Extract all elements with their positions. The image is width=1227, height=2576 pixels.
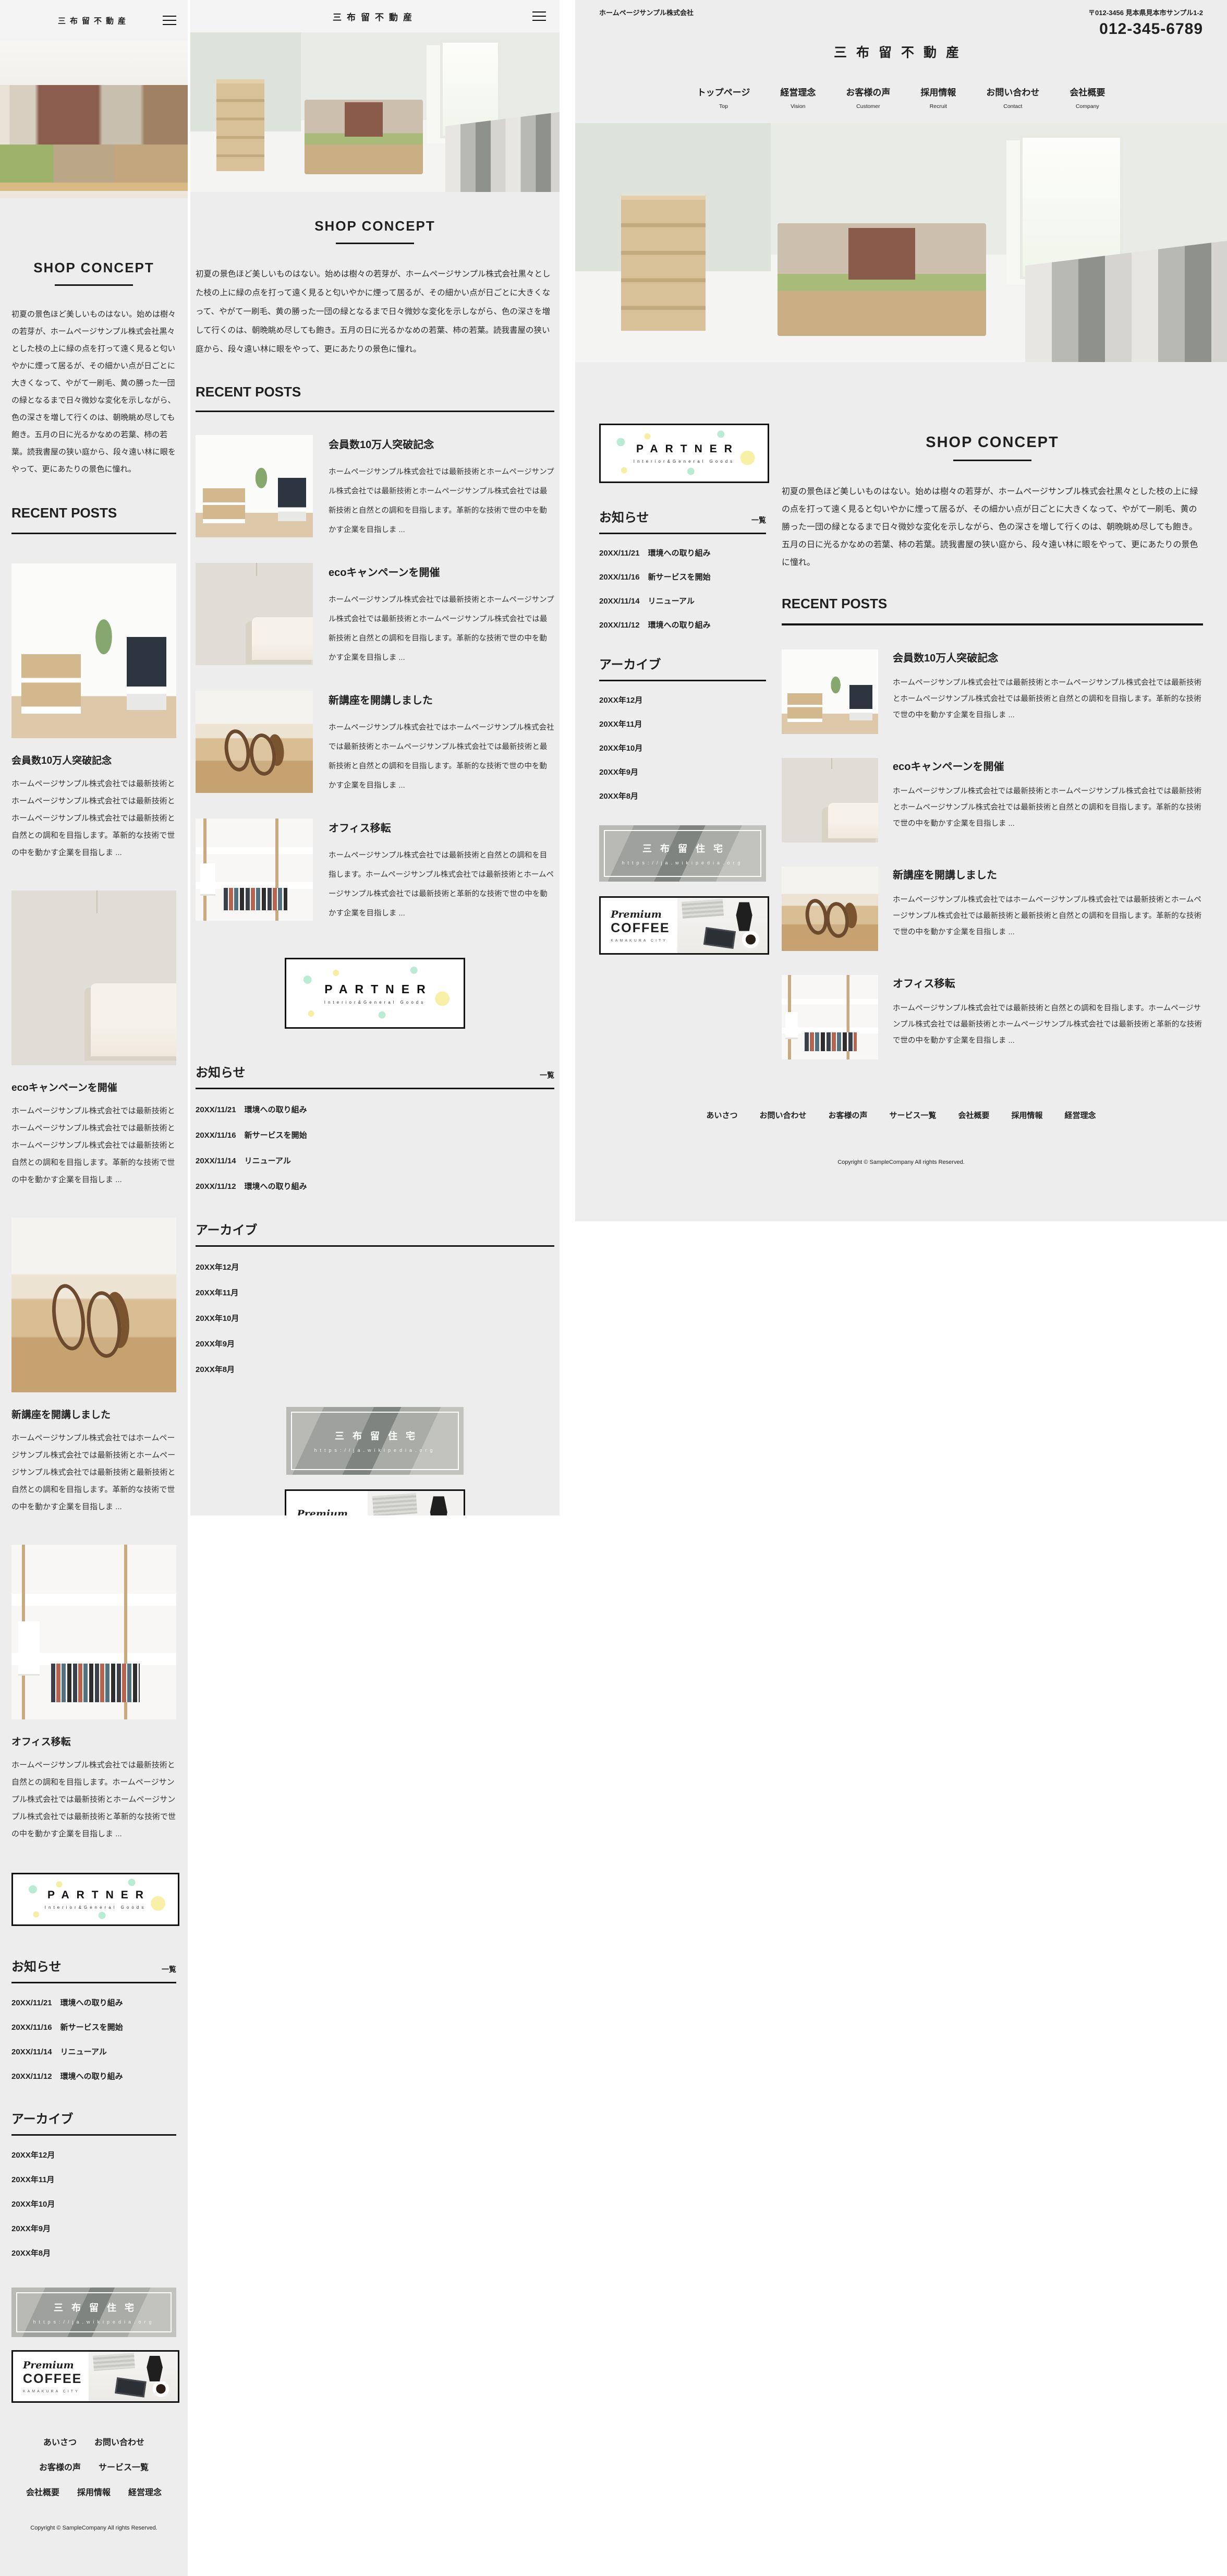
nav-item-top[interactable]: トップページ Top (697, 85, 750, 110)
main-content: SHOP CONCEPT 初夏の景色ほど美しいものはない。始めは樹々の若芽が、ホ… (782, 434, 1203, 1060)
post-photo-bookshelf (11, 1545, 176, 1719)
news-heading: お知らせ (196, 1062, 246, 1080)
footer-link[interactable]: お客様の声 (39, 2460, 81, 2473)
news-date: 20XX/11/14 (599, 597, 640, 606)
partner-banner-title: PARTNER (629, 443, 739, 455)
news-item[interactable]: 20XX/11/21環境への取り組み (11, 1997, 176, 2008)
post-photo-glasses (11, 1218, 176, 1392)
news-title: 環境への取り組み (245, 1182, 307, 1191)
nav-sublabel: Recruit (920, 103, 956, 110)
shop-concept-body: 初夏の景色ほど美しいものはない。始めは樹々の若芽が、ホームページサンプル株式会社… (11, 306, 176, 478)
coffee-banner[interactable]: Premium COFFEE KAMAKURA CITY (285, 1489, 465, 1515)
news-date: 20XX/11/12 (599, 621, 640, 630)
shop-concept-heading: SHOP CONCEPT (11, 260, 176, 276)
footer-link[interactable]: お問い合わせ (94, 2435, 144, 2448)
house-banner-title: 三布留住宅 (45, 2301, 142, 2314)
nav-item-contact[interactable]: お問い合わせ Contact (986, 85, 1039, 110)
house-banner-url: https://ja.wikipedia.org (314, 1448, 435, 1453)
post-excerpt: ホームページサンプル株式会社では最新技術とホームページサンプル株式会社では最新技… (329, 591, 554, 668)
house-banner-frame: 三布留住宅 https://ja.wikipedia.org (604, 830, 761, 877)
recent-posts-heading: RECENT POSTS (11, 505, 176, 521)
news-date: 20XX/11/12 (196, 1182, 236, 1191)
post-photo-office (782, 649, 878, 734)
footer-link[interactable]: お客様の声 (828, 1110, 867, 1121)
post-title: 新講座を開講しました (11, 1407, 176, 1421)
nav-label: 経営理念 (780, 85, 816, 98)
coffee-banner-label: Premium COFFEE KAMAKURA CITY (601, 898, 677, 953)
news-title: 環境への取り組み (648, 621, 711, 630)
coffee-banner-label: Premium COFFEE KAMAKURA CITY (13, 2352, 89, 2401)
news-item[interactable]: 20XX/11/14リニューアル (11, 2046, 176, 2057)
partner-banner-subtitle: Interior&General Goods (634, 459, 735, 464)
post-excerpt: ホームページサンプル株式会社ではホームページサンプル株式会社では最新技術とホーム… (329, 718, 554, 796)
footer-link[interactable]: あいさつ (706, 1110, 737, 1121)
nav-label: トップページ (697, 85, 750, 98)
hero-photo-sofa (0, 41, 188, 198)
post-excerpt: ホームページサンプル株式会社では最新技術とホームページサンプル株式会社では最新技… (893, 675, 1203, 724)
archive-item[interactable]: 20XX年8月 (196, 1364, 554, 1375)
post-excerpt: ホームページサンプル株式会社では最新技術とホームページサンプル株式会社では最新技… (329, 463, 554, 540)
partner-banner[interactable]: PARTNER Interior&General Goods (11, 1873, 179, 1926)
archive-item[interactable]: 20XX年12月 (599, 694, 766, 705)
news-date: 20XX/11/16 (599, 573, 640, 582)
company-name: ホームページサンプル株式会社 (599, 7, 694, 17)
post-photo-bedroom (196, 563, 313, 665)
nav-sublabel: Vision (780, 103, 816, 110)
site-logo[interactable]: 三布留不動産 (58, 15, 130, 26)
mobile-viewport: 三布留不動産 SHOP CONCEPT 初夏の景色ほど美しいものはない。始めは樹… (0, 0, 188, 2576)
footer-link[interactable]: あいさつ (43, 2435, 77, 2448)
hamburger-menu-icon[interactable] (163, 20, 176, 21)
news-item[interactable]: 20XX/11/16新サービスを開始 (196, 1129, 554, 1140)
archive-item[interactable]: 20XX年9月 (196, 1338, 554, 1349)
news-heading: お知らせ (599, 507, 649, 525)
post-item[interactable]: オフィス移転 ホームページサンプル株式会社では最新技術と自然との調和を目指します… (196, 818, 554, 923)
post-title: オフィス移転 (11, 1734, 176, 1748)
coffee-banner-premium: Premium (23, 2360, 89, 2371)
post-title: ecoキャンペーンを開催 (11, 1080, 176, 1094)
footer-link[interactable]: 経営理念 (128, 2485, 162, 2498)
archive-item[interactable]: 20XX年12月 (196, 1261, 554, 1272)
coffee-banner-photo (368, 1491, 464, 1515)
news-item[interactable]: 20XX/11/16新サービスを開始 (11, 2021, 176, 2032)
news-title: 環境への取り組み (60, 2072, 123, 2081)
post-excerpt: ホームページサンプル株式会社では最新技術とホームページサンプル株式会社では最新技… (893, 784, 1203, 832)
news-title: 環境への取り組み (245, 1105, 307, 1114)
heading-underline (55, 284, 133, 286)
house-banner-frame: 三布留住宅 https://ja.wikipedia.org (291, 1412, 459, 1470)
copyright: Copyright © SampleCompany All rights Res… (11, 2525, 176, 2531)
house-banner-url: https://ja.wikipedia.org (33, 2319, 154, 2325)
house-banner[interactable]: 三布留住宅 https://ja.wikipedia.org (599, 825, 766, 882)
footer-link[interactable]: 採用情報 (1012, 1110, 1043, 1121)
post-item[interactable]: 会員数10万人突破記念 ホームページサンプル株式会社では最新技術とホームページサ… (11, 563, 176, 861)
news-title: 新サービスを開始 (648, 573, 711, 582)
news-item[interactable]: 20XX/11/14リニューアル (599, 595, 766, 606)
tablet-viewport: 三布留不動産 SHOP CONCEPT 初夏の景色ほど美しいものはない。始めは樹… (190, 0, 560, 1515)
coffee-banner[interactable]: Premium COFFEE KAMAKURA CITY (11, 2350, 179, 2403)
post-item[interactable]: ecoキャンペーンを開催 ホームページサンプル株式会社では最新技術とホームページ… (782, 758, 1203, 842)
hamburger-menu-icon[interactable] (532, 16, 546, 17)
archive-item[interactable]: 20XX年10月 (599, 742, 766, 753)
news-date: 20XX/11/21 (196, 1105, 236, 1114)
nav-sublabel: Company (1070, 103, 1105, 110)
nav-label: お客様の声 (846, 85, 890, 98)
post-photo-bookshelf (782, 975, 878, 1060)
news-date: 20XX/11/21 (599, 549, 640, 558)
post-title: 会員数10万人突破記念 (893, 649, 1203, 665)
partner-banner-title: PARTNER (317, 982, 432, 996)
house-banner[interactable]: 三布留住宅 https://ja.wikipedia.org (286, 1407, 464, 1475)
coffee-banner-label: Premium COFFEE KAMAKURA CITY (286, 1491, 368, 1515)
post-item[interactable]: 会員数10万人突破記念 ホームページサンプル株式会社では最新技術とホームページサ… (782, 649, 1203, 734)
shop-concept-body: 初夏の景色ほど美しいものはない。始めは樹々の若芽が、ホームページサンプル株式会社… (196, 265, 554, 359)
news-date: 20XX/11/21 (11, 1999, 52, 2007)
archive-item[interactable]: 20XX年11月 (599, 718, 766, 729)
post-photo-office (11, 563, 176, 738)
sidebar: PARTNER Interior&General Goods お知らせ 一覧 2… (599, 424, 766, 1060)
news-list-link[interactable]: 一覧 (162, 1964, 176, 1975)
news-item[interactable]: 20XX/11/14リニューアル (196, 1155, 554, 1166)
post-title: 新講座を開講しました (893, 866, 1203, 882)
news-item[interactable]: 20XX/11/12環境への取り組み (196, 1181, 554, 1191)
post-photo-glasses (782, 866, 878, 951)
news-item[interactable]: 20XX/11/12環境への取り組み (11, 2071, 176, 2081)
sofa-decor (305, 100, 423, 175)
post-title: ecoキャンペーンを開催 (329, 564, 554, 579)
news-title: 新サービスを開始 (60, 2023, 123, 2032)
archive-item[interactable]: 20XX年8月 (599, 790, 766, 801)
calendar-decor (200, 863, 215, 894)
post-excerpt: ホームページサンプル株式会社では最新技術と自然との調和を目指します。ホームページ… (893, 1001, 1203, 1049)
phone-number[interactable]: 012-345-6789 (1088, 20, 1203, 38)
post-title: 会員数10万人突破記念 (11, 753, 176, 767)
sofa-decor (777, 223, 986, 335)
news-heading: お知らせ (11, 1956, 62, 1975)
archive-heading: アーカイブ (196, 1220, 258, 1238)
calendar-decor (18, 1621, 40, 1674)
post-photo-office (196, 435, 313, 537)
post-item[interactable]: 会員数10万人突破記念 ホームページサンプル株式会社では最新技術とホームページサ… (196, 435, 554, 540)
post-item[interactable]: 新講座を開講しました ホームページサンプル株式会社ではホームページサンプル株式会… (782, 866, 1203, 951)
footer-link[interactable]: サービス一覧 (99, 2460, 149, 2473)
news-title: リニューアル (60, 2048, 107, 2056)
dresser-decor (621, 200, 706, 331)
post-title: ecoキャンペーンを開催 (893, 758, 1203, 773)
coffee-banner-city: KAMAKURA CITY (23, 2390, 89, 2393)
news-date: 20XX/11/16 (11, 2023, 52, 2032)
news-list-link[interactable]: 一覧 (540, 1070, 554, 1080)
post-excerpt: ホームページサンプル株式会社では最新技術と自然との調和を目指します。ホームページ… (329, 846, 554, 923)
post-photo-glasses (196, 691, 313, 793)
news-date: 20XX/11/14 (11, 2048, 52, 2056)
hero-photo-room (575, 123, 1227, 362)
partner-banner[interactable]: PARTNER Interior&General Goods (599, 424, 769, 483)
coffee-banner-premium: Premium (297, 1508, 368, 1516)
footer-link[interactable]: お問い合わせ (759, 1110, 806, 1121)
divider (11, 1982, 176, 1983)
post-excerpt: ホームページサンプル株式会社では最新技術とホームページサンプル株式会社では最新技… (11, 1102, 176, 1188)
archive-section: アーカイブ 20XX年12月 20XX年11月 20XX年10月 20XX年9月… (11, 2109, 176, 2258)
news-title: 環境への取り組み (648, 549, 711, 558)
coffee-banner-title: COFFEE (23, 2372, 89, 2387)
post-excerpt: ホームページサンプル株式会社ではホームページサンプル株式会社では最新技術とホーム… (11, 1429, 176, 1515)
house-banner-title: 三布留住宅 (634, 841, 731, 855)
mobile-header: 三布留不動産 (0, 0, 188, 41)
archive-section: アーカイブ 20XX年12月 20XX年11月 20XX年10月 20XX年9月… (599, 654, 766, 801)
footer-link[interactable]: サービス一覧 (889, 1110, 936, 1121)
post-photo-bedroom (782, 758, 878, 842)
coffee-banner-title: COFFEE (611, 921, 677, 936)
footer-link[interactable]: 会社概要 (26, 2485, 59, 2498)
news-item[interactable]: 20XX/11/21環境への取り組み (196, 1104, 554, 1115)
dresser-decor (216, 83, 264, 171)
recent-posts-heading: RECENT POSTS (782, 596, 1203, 612)
house-banner[interactable]: 三布留住宅 https://ja.wikipedia.org (11, 2288, 176, 2337)
archive-heading: アーカイブ (11, 2109, 74, 2127)
heading-underline (953, 460, 1031, 461)
coffee-banner-city: KAMAKURA CITY (611, 939, 677, 943)
post-title: 新講座を開講しました (329, 692, 554, 707)
post-item[interactable]: ecoキャンペーンを開催 ホームページサンプル株式会社では最新技術とホームページ… (196, 563, 554, 668)
nav-label: 採用情報 (920, 85, 956, 98)
shop-concept-body: 初夏の景色ほど美しいものはない。始めは樹々の若芽が、ホームページサンプル株式会社… (782, 483, 1203, 572)
archive-item[interactable]: 20XX年10月 (196, 1313, 554, 1323)
news-title: 環境への取り組み (60, 1999, 123, 2007)
post-excerpt: ホームページサンプル株式会社では最新技術とホームページサンプル株式会社では最新技… (11, 775, 176, 861)
nav-label: 会社概要 (1070, 85, 1105, 98)
news-section: お知らせ 一覧 20XX/11/21環境への取り組み 20XX/11/16新サー… (599, 507, 766, 630)
magazines-decor (682, 899, 724, 919)
news-date: 20XX/11/14 (196, 1157, 236, 1165)
nav-item-recruit[interactable]: 採用情報 Recruit (920, 85, 956, 110)
news-list-link[interactable]: 一覧 (751, 515, 766, 525)
news-date: 20XX/11/16 (196, 1131, 236, 1140)
news-title: リニューアル (648, 597, 695, 606)
house-banner-frame: 三布留住宅 https://ja.wikipedia.org (16, 2292, 172, 2332)
post-item[interactable]: ecoキャンペーンを開催 ホームページサンプル株式会社では最新技術とホームページ… (11, 890, 176, 1188)
hero-photo-room (190, 32, 560, 192)
post-title: オフィス移転 (329, 820, 554, 835)
company-address: 〒012-3456 見本県見本市サンプル1-2 (1088, 7, 1203, 17)
post-excerpt: ホームページサンプル株式会社ではホームページサンプル株式会社では最新技術とホーム… (893, 892, 1203, 941)
partner-banner-title: PARTNER (40, 1889, 151, 1901)
main-nav: トップページ Top 経営理念 Vision お客様の声 Customer 採用… (575, 85, 1227, 110)
mobile-footer: あいさつ お問い合わせ お客様の声 サービス一覧 会社概要 採用情報 経営理念 … (11, 2435, 176, 2531)
post-item[interactable]: オフィス移転 ホームページサンプル株式会社では最新技術と自然との調和を目指します… (782, 975, 1203, 1060)
tablet-header: 三布留不動産 (190, 0, 560, 32)
archive-section: アーカイブ 20XX年12月 20XX年11月 20XX年10月 20XX年9月… (196, 1220, 554, 1375)
coffee-banner-photo (677, 898, 768, 953)
archive-item[interactable]: 20XX年8月 (11, 2247, 176, 2258)
partner-banner-subtitle: Interior&General Goods (45, 1905, 147, 1910)
divider (599, 680, 766, 681)
divider (11, 2134, 176, 2136)
post-photo-bookshelf (196, 818, 313, 921)
archive-item[interactable]: 20XX年10月 (11, 2198, 176, 2209)
copyright: Copyright © SampleCompany All rights Res… (575, 1159, 1227, 1165)
post-title: オフィス移転 (893, 975, 1203, 990)
desktop-viewport: ホームページサンプル株式会社 〒012-3456 見本県見本市サンプル1-2 0… (575, 0, 1227, 1221)
house-banner-url: https://ja.wikipedia.org (622, 860, 743, 865)
recent-posts-heading: RECENT POSTS (196, 384, 554, 400)
tablet-decor (115, 2377, 147, 2397)
archive-item[interactable]: 20XX年12月 (11, 2149, 176, 2160)
news-item[interactable]: 20XX/11/21環境への取り組み (599, 547, 766, 558)
site-logo[interactable]: 三布留不動産 (333, 10, 417, 23)
magazines-decor (372, 1493, 417, 1515)
post-excerpt: ホームページサンプル株式会社では最新技術と自然との調和を目指します。ホームページ… (11, 1756, 176, 1843)
heading-underline (11, 533, 176, 534)
tablet-decor (703, 927, 736, 948)
partner-banner-subtitle: Interior&General Goods (324, 1000, 426, 1005)
coffee-banner-premium: Premium (611, 909, 677, 920)
nav-item-customer[interactable]: お客様の声 Customer (846, 85, 890, 110)
post-title: 会員数10万人突破記念 (329, 436, 554, 451)
shop-concept-heading: SHOP CONCEPT (196, 218, 554, 234)
archive-item[interactable]: 20XX年11月 (11, 2174, 176, 2185)
post-item[interactable]: 新講座を開講しました ホームページサンプル株式会社ではホームページサンプル株式会… (11, 1218, 176, 1515)
divider (196, 1088, 554, 1089)
heading-underline (336, 243, 414, 244)
footer-link[interactable]: 採用情報 (77, 2485, 111, 2498)
heading-underline (782, 623, 1203, 625)
house-banner-title: 三布留住宅 (326, 1429, 423, 1442)
coffee-banner-photo (89, 2352, 178, 2401)
calendar-decor (785, 1012, 798, 1038)
coffee-banner[interactable]: Premium COFFEE KAMAKURA CITY (599, 896, 769, 955)
desktop-header: ホームページサンプル株式会社 〒012-3456 見本県見本市サンプル1-2 0… (575, 0, 1227, 110)
nav-item-company[interactable]: 会社概要 Company (1070, 85, 1105, 110)
desktop-footer: あいさつ お問い合わせ お客様の声 サービス一覧 会社概要 採用情報 経営理念 (575, 1110, 1227, 1121)
nav-sublabel: Contact (986, 103, 1039, 110)
news-item[interactable]: 20XX/11/12環境への取り組み (599, 619, 766, 630)
divider (196, 1245, 554, 1247)
nav-sublabel: Customer (846, 103, 890, 110)
partner-banner[interactable]: PARTNER Interior&General Goods (285, 958, 465, 1029)
news-title: 新サービスを開始 (245, 1131, 307, 1140)
post-photo-bedroom (11, 890, 176, 1065)
news-title: リニューアル (245, 1157, 291, 1165)
post-item[interactable]: オフィス移転 ホームページサンプル株式会社では最新技術と自然との調和を目指します… (11, 1545, 176, 1843)
archive-item[interactable]: 20XX年11月 (196, 1287, 554, 1298)
news-item[interactable]: 20XX/11/16新サービスを開始 (599, 571, 766, 582)
nav-item-vision[interactable]: 経営理念 Vision (780, 85, 816, 110)
magazines-decor (93, 2353, 135, 2370)
news-date: 20XX/11/12 (11, 2072, 52, 2081)
divider (599, 533, 766, 534)
post-item[interactable]: 新講座を開講しました ホームページサンプル株式会社ではホームページサンプル株式会… (196, 691, 554, 796)
site-logo[interactable]: 三布留不動産 (834, 45, 968, 60)
footer-link[interactable]: 経営理念 (1065, 1110, 1096, 1121)
nav-sublabel: Top (697, 103, 750, 110)
archive-heading: アーカイブ (599, 654, 661, 672)
nav-label: お問い合わせ (986, 85, 1039, 98)
archive-item[interactable]: 20XX年9月 (11, 2223, 176, 2234)
heading-underline (196, 411, 554, 412)
archive-item[interactable]: 20XX年9月 (599, 766, 766, 777)
footer-link[interactable]: 会社概要 (958, 1110, 990, 1121)
news-section: お知らせ 一覧 20XX/11/21環境への取り組み 20XX/11/16新サー… (196, 1062, 554, 1191)
shop-concept-heading: SHOP CONCEPT (782, 434, 1203, 451)
news-section: お知らせ 一覧 20XX/11/21環境への取り組み 20XX/11/16新サー… (11, 1956, 176, 2081)
